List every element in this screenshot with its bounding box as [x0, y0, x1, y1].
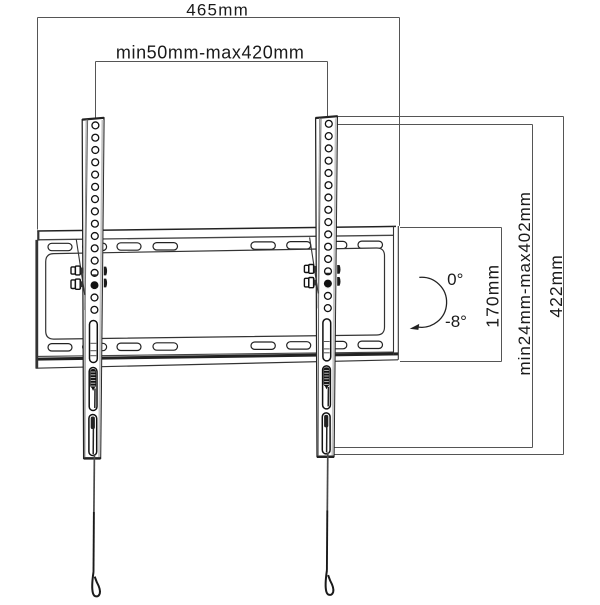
- svg-text:0°: 0°: [447, 270, 463, 289]
- svg-text:min24mm-max402mm: min24mm-max402mm: [515, 191, 534, 375]
- svg-text:170mm: 170mm: [483, 264, 503, 328]
- svg-text:min50mm-max420mm: min50mm-max420mm: [116, 43, 305, 63]
- svg-text:-8°: -8°: [445, 312, 467, 331]
- svg-text:422mm: 422mm: [546, 254, 566, 317]
- svg-text:465mm: 465mm: [186, 0, 249, 19]
